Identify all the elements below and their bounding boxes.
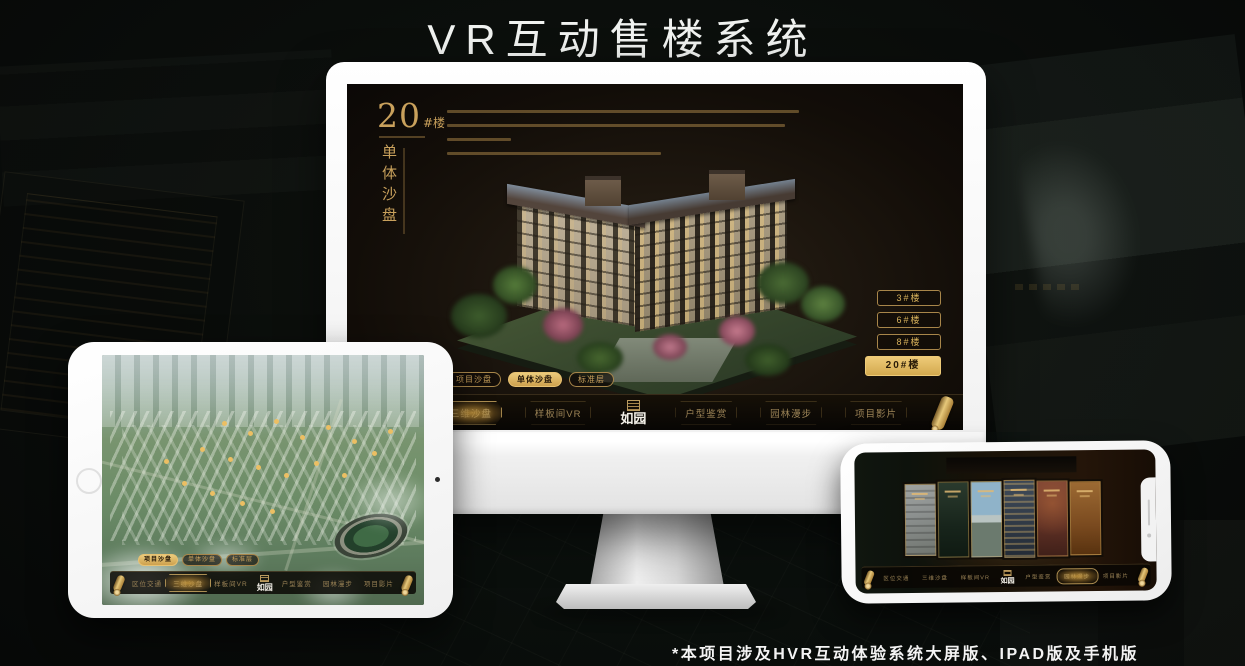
- camera-icon: [1147, 533, 1151, 537]
- nav-item-label: 区位交通: [883, 576, 909, 582]
- brand-logo[interactable]: 如园: [1001, 569, 1015, 583]
- nav-item-label: 项目影片: [1103, 573, 1129, 579]
- nav-item-garden[interactable]: 园林漫步: [766, 404, 816, 422]
- brand-logo[interactable]: 如园: [620, 400, 646, 426]
- flower-blob: [543, 308, 583, 342]
- nav-item-sandbox[interactable]: 三维沙盘: [920, 572, 950, 582]
- background-collage: [0, 49, 338, 206]
- nav-item-location[interactable]: 区位交通: [130, 577, 164, 589]
- nav-item-label: 样板间VR: [214, 581, 248, 588]
- ipad-navbar: 区位交通 三维沙盘 样板间VR 如园 户型鉴赏 园林漫步 项目影片: [110, 571, 416, 594]
- block-subtitle: 单体沙盘: [379, 144, 400, 228]
- nav-item-sandbox[interactable]: 三维沙盘: [446, 404, 496, 422]
- nav-item-showroom-vr[interactable]: 样板间VR: [531, 404, 586, 422]
- nav-ornament-icon: [525, 401, 592, 425]
- gallery-panel[interactable]: [905, 484, 937, 556]
- background-collage: [1012, 111, 1168, 348]
- building-model-viewport[interactable]: [457, 166, 857, 404]
- flower-blob: [719, 316, 755, 346]
- description-line: [447, 152, 661, 155]
- nav-ornament-icon: [675, 401, 737, 425]
- ipad-device: 项目沙盘 单体沙盘 标准层 区位交通 三维沙盘 样板间VR 如园 户型鉴赏 园林…: [68, 342, 453, 618]
- floor-button[interactable]: 6#楼: [877, 312, 941, 328]
- nav-item-label: 三维沙盘: [922, 575, 948, 581]
- floor-button[interactable]: 3#楼: [877, 290, 941, 306]
- description-line: [447, 124, 785, 127]
- tree-blob: [451, 294, 507, 338]
- view-tab[interactable]: 单体沙盘: [182, 554, 222, 566]
- building-number-markers[interactable]: [222, 421, 227, 426]
- floor-button-active[interactable]: 20#楼: [865, 356, 941, 376]
- nav-ornament-icon: [760, 401, 822, 425]
- background-collage: [952, 34, 1245, 466]
- brand-logo[interactable]: 如园: [257, 575, 273, 591]
- floor-button-column: 3#楼 6#楼 8#楼 20#楼: [865, 290, 941, 376]
- view-tab[interactable]: 标准层: [226, 554, 259, 566]
- view-tab-active[interactable]: 项目沙盘: [138, 554, 178, 566]
- gallery-panel[interactable]: [1037, 480, 1069, 556]
- gallery-panel[interactable]: [971, 481, 1003, 557]
- promo-poster: VR互动售楼系统 *本项目涉及HVR互动体验系统大屏版、IPAD版及手机版 20…: [0, 0, 1245, 666]
- phone-navbar: 区位交通 三维沙盘 样板间VR 如园 户型鉴赏 园林漫步 项目影片: [861, 563, 1150, 588]
- nav-item-label: 区位交通: [132, 581, 162, 588]
- interior-lintel: [946, 456, 1076, 473]
- page-title: VR互动售楼系统: [0, 6, 1245, 67]
- nav-item-film[interactable]: 项目影片: [851, 404, 901, 422]
- scroll-icon[interactable]: [1137, 567, 1149, 584]
- phone-notch: [1141, 477, 1157, 561]
- speaker-icon: [1148, 499, 1150, 525]
- tree-blob: [801, 286, 845, 322]
- nav-item-showroom-vr[interactable]: 样板间VR: [959, 572, 992, 582]
- scroll-icon[interactable]: [930, 394, 955, 430]
- nav-ornament-icon: [165, 574, 211, 592]
- logo-text: 如园: [1001, 576, 1015, 583]
- model-tower: [709, 174, 745, 200]
- phone-device: 区位交通 三维沙盘 样板间VR 如园 户型鉴赏 园林漫步 项目影片: [840, 440, 1172, 603]
- nav-ornament-icon: [1056, 568, 1098, 584]
- floor-button[interactable]: 8#楼: [877, 334, 941, 350]
- logo-text: 如园: [620, 413, 646, 426]
- tree-blob: [493, 266, 537, 304]
- phone-screen: 区位交通 三维沙盘 样板间VR 如园 户型鉴赏 园林漫步 项目影片: [854, 449, 1156, 593]
- gallery-panel[interactable]: [938, 481, 970, 557]
- ipad-screen: 项目沙盘 单体沙盘 标准层 区位交通 三维沙盘 样板间VR 如园 户型鉴赏 园林…: [102, 355, 424, 605]
- view-tab[interactable]: 项目沙盘: [447, 372, 501, 387]
- view-tab[interactable]: 标准层: [569, 372, 614, 387]
- monitor-stand-neck: [590, 513, 724, 587]
- logo-text: 如园: [257, 583, 273, 591]
- scroll-icon[interactable]: [863, 570, 875, 587]
- background-collage: [1015, 284, 1085, 290]
- nav-item-label: 户型鉴赏: [1025, 574, 1051, 580]
- tree-blob: [745, 344, 791, 376]
- nav-item-garden[interactable]: 园林漫步: [321, 577, 355, 589]
- block-caption-line: [379, 136, 425, 138]
- footnote-text: *本项目涉及HVR互动体验系统大屏版、IPAD版及手机版: [672, 640, 1139, 664]
- seal-icon: [260, 575, 269, 582]
- scroll-icon[interactable]: [112, 574, 126, 593]
- flower-blob: [653, 334, 687, 360]
- block-title-number: 20: [377, 96, 421, 135]
- home-button-icon[interactable]: [76, 468, 102, 494]
- ipad-view-tab-row: 项目沙盘 单体沙盘 标准层: [138, 554, 259, 566]
- nav-ornament-icon: [845, 401, 907, 425]
- description-line: [447, 110, 799, 113]
- scroll-icon[interactable]: [400, 574, 414, 593]
- description-line: [447, 138, 511, 141]
- nav-item-sandbox[interactable]: 三维沙盘: [171, 577, 205, 589]
- view-tab-active[interactable]: 单体沙盘: [508, 372, 562, 387]
- seal-icon: [627, 400, 640, 411]
- nav-item-floorplans[interactable]: 户型鉴赏: [681, 404, 731, 422]
- nav-item-label: 样板间VR: [961, 575, 990, 581]
- nav-item-label: 户型鉴赏: [282, 581, 312, 588]
- gallery-panel[interactable]: [1004, 480, 1036, 558]
- nav-item-floorplans[interactable]: 户型鉴赏: [280, 577, 314, 589]
- nav-item-location[interactable]: 区位交通: [881, 572, 911, 582]
- model-tower: [585, 180, 621, 206]
- camera-icon: [435, 477, 440, 482]
- block-subtitle-line: [403, 148, 405, 234]
- gallery-panel[interactable]: [1070, 481, 1102, 555]
- nav-item-showroom-vr[interactable]: 样板间VR: [212, 577, 250, 589]
- block-title-suffix: #楼: [423, 116, 445, 130]
- nav-item-film[interactable]: 项目影片: [1101, 570, 1131, 580]
- nav-item-floorplans[interactable]: 户型鉴赏: [1023, 571, 1053, 581]
- nav-item-label: 园林漫步: [323, 581, 353, 588]
- monitor-stand-base: [556, 584, 756, 609]
- nav-item-film[interactable]: 项目影片: [362, 577, 396, 589]
- nav-item-garden[interactable]: 园林漫步: [1062, 571, 1092, 581]
- nav-item-label: 项目影片: [364, 581, 394, 588]
- block-title: 20#楼: [377, 96, 445, 135]
- view-tab-row: 项目沙盘 单体沙盘 标准层: [447, 372, 614, 387]
- aerial-masterplan-image[interactable]: [102, 355, 424, 605]
- seal-icon: [1004, 569, 1012, 575]
- tree-blob: [577, 342, 623, 374]
